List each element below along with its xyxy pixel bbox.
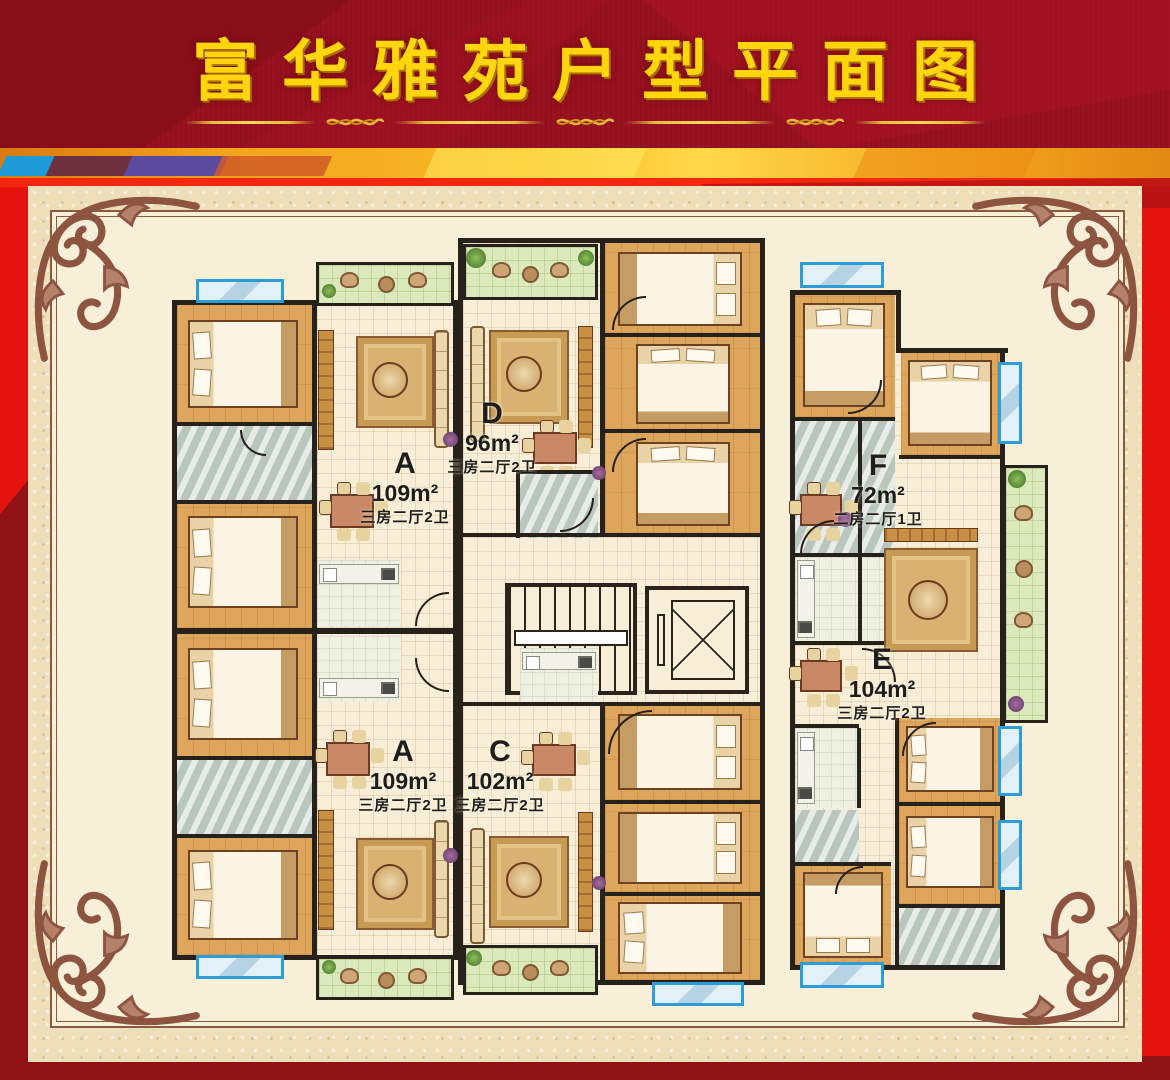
balcony-table	[522, 964, 539, 981]
bed	[188, 516, 298, 608]
unit-spec: 三房二厅2卫	[422, 457, 562, 478]
wall	[177, 756, 312, 760]
title-banner: 富华雅苑户型平面图	[0, 0, 1170, 150]
maroon-left-shard	[0, 478, 30, 1080]
unit-spec: 三房二厅2卫	[333, 795, 473, 816]
divider-ornament-icon	[555, 114, 615, 130]
unit-area: 72m²	[808, 482, 948, 510]
bed	[618, 902, 742, 974]
bed	[188, 850, 298, 940]
wall	[312, 305, 317, 955]
kitchen-counter	[319, 564, 399, 584]
wall	[896, 290, 901, 352]
unit-id: A	[333, 736, 473, 768]
accent-stripe	[0, 148, 1170, 178]
stripe-shape-purple	[124, 156, 229, 176]
bathroom-floor	[177, 759, 312, 837]
bed	[636, 442, 730, 526]
stair-rail	[514, 630, 628, 646]
divider-line	[395, 121, 545, 124]
cabinet	[318, 330, 334, 450]
coffee-table	[908, 580, 948, 620]
kitchen-counter	[797, 560, 815, 638]
stripe-shape-rust	[214, 156, 333, 176]
window-icon	[800, 962, 884, 988]
balcony-chair	[1014, 505, 1033, 521]
unit-area: 104m²	[812, 676, 952, 704]
unit-spec: 二房二厅1卫	[808, 509, 948, 530]
stripe-shape-gold	[423, 148, 646, 178]
balcony-table	[378, 972, 395, 989]
window-icon	[196, 955, 284, 979]
flower-icon	[592, 876, 606, 890]
bed	[908, 360, 992, 446]
gold-divider	[0, 112, 1170, 132]
balcony-chair	[492, 262, 511, 278]
balcony-chair	[340, 272, 359, 288]
divider-ornament-icon	[785, 114, 845, 130]
wall	[857, 728, 861, 808]
plant-icon	[1008, 470, 1026, 488]
bed	[188, 648, 298, 740]
plant-icon	[322, 960, 336, 974]
cabinet	[884, 528, 978, 542]
building-notch	[898, 285, 1008, 349]
plant-icon	[466, 248, 486, 268]
unit-area: 109m²	[333, 768, 473, 796]
unit-label-e: E 104m² 三房二厅2卫	[812, 644, 952, 724]
poster-title: 富华雅苑户型平面图	[0, 18, 1170, 114]
divider-line	[185, 121, 315, 124]
unit-spec: 三房二厅2卫	[335, 507, 475, 528]
window-icon	[652, 982, 744, 1006]
window-icon	[196, 279, 284, 303]
unit-id: F	[808, 450, 948, 482]
unit-area: 109m²	[335, 480, 475, 508]
elevator-door	[657, 614, 665, 666]
coffee-table	[506, 356, 542, 392]
wall	[516, 474, 520, 538]
balcony-chair	[1014, 612, 1033, 628]
balcony-chair	[550, 960, 569, 976]
coffee-table	[506, 862, 542, 898]
sofa	[470, 828, 485, 944]
balcony-chair	[408, 272, 427, 288]
balcony-table	[378, 276, 395, 293]
bed	[188, 320, 298, 408]
sofa	[434, 820, 449, 938]
bed	[636, 344, 730, 424]
elevator-car	[671, 600, 735, 680]
coffee-table	[372, 362, 408, 398]
balcony-chair	[408, 968, 427, 984]
unit-id: D	[422, 398, 562, 430]
wall	[463, 533, 760, 537]
bathroom-floor	[899, 908, 1000, 965]
unit-spec: 三房二厅2卫	[812, 703, 952, 724]
cabinet	[318, 810, 334, 930]
kitchen-counter	[797, 732, 815, 804]
cabinet	[578, 326, 593, 448]
balcony-chair	[550, 262, 569, 278]
kitchen-counter	[522, 652, 596, 670]
divider-ornament-icon	[325, 114, 385, 130]
balcony-table	[1015, 560, 1033, 578]
wall	[795, 724, 859, 728]
poster: 富华雅苑户型平面图	[0, 0, 1170, 1080]
kitchen-counter	[319, 678, 399, 698]
flower-icon	[1008, 696, 1024, 712]
balcony	[1003, 465, 1048, 723]
flower-icon	[592, 466, 606, 480]
window-icon	[800, 262, 884, 288]
cabinet	[578, 812, 593, 932]
plant-icon	[466, 950, 482, 966]
wall	[177, 500, 312, 504]
window-icon	[998, 362, 1022, 444]
plant-icon	[322, 284, 336, 298]
unit-label-f: F 72m² 二房二厅1卫	[808, 450, 948, 530]
balcony-chair	[492, 960, 511, 976]
unit-area: 96m²	[422, 430, 562, 458]
divider-line	[625, 121, 775, 124]
window-icon	[998, 726, 1022, 796]
window-icon	[998, 820, 1022, 890]
bathroom-floor	[795, 810, 859, 862]
balcony-chair	[340, 968, 359, 984]
divider-line	[855, 121, 985, 124]
bed	[906, 816, 994, 888]
bed	[618, 812, 742, 884]
flower-icon	[443, 848, 458, 863]
unit-label-a-bottom: A 109m² 三房二厅2卫	[333, 736, 473, 816]
wall	[177, 422, 312, 426]
stripe-shape-rust	[853, 148, 1036, 178]
balcony-table	[522, 266, 539, 283]
wall	[177, 834, 312, 838]
coffee-table	[372, 864, 408, 900]
unit-label-d: D 96m² 三房二厅2卫	[422, 398, 562, 478]
unit-id: E	[812, 644, 952, 676]
plant-icon	[578, 250, 594, 266]
elevator-icon	[645, 586, 749, 694]
